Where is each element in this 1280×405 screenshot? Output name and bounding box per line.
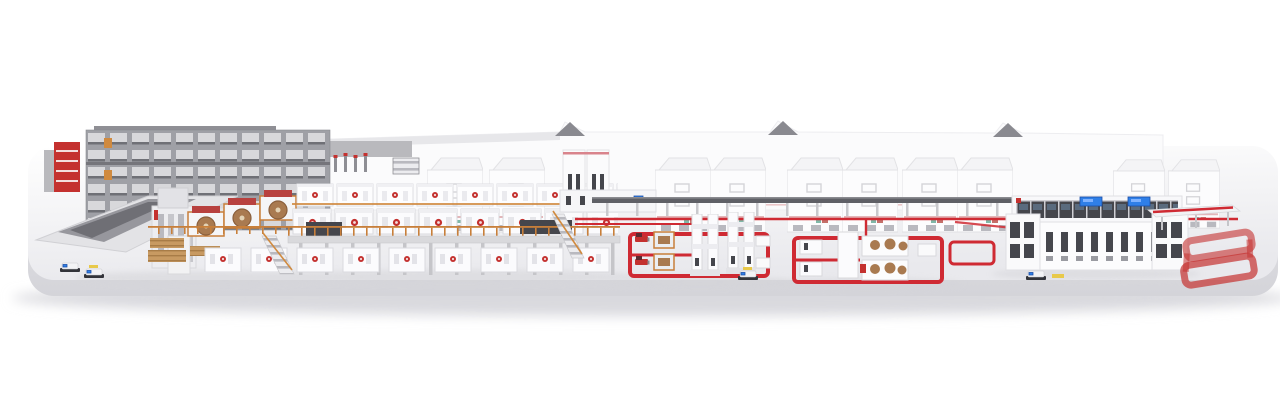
agv — [1026, 271, 1046, 280]
die-cutter-lower — [860, 260, 908, 280]
agv — [60, 263, 80, 272]
sorting-end-tower-right — [1152, 214, 1188, 270]
box-machine — [902, 158, 958, 232]
plant-render-canvas: 3D rendering of a complete corrugated bo… — [0, 0, 1280, 405]
roll-stand — [260, 190, 296, 220]
rack-orange-accent — [104, 170, 112, 180]
box-machine — [787, 158, 843, 232]
roof-steps — [393, 158, 419, 174]
pallet-stack — [148, 250, 186, 262]
corrugator-row-ground — [292, 246, 614, 274]
box-machine — [842, 158, 898, 232]
roll-stand — [224, 198, 260, 228]
red-trim — [563, 152, 609, 155]
box-machine — [957, 158, 1013, 232]
box-machine — [655, 158, 711, 232]
feeder-tower — [838, 232, 858, 278]
pallet-stack — [150, 238, 184, 248]
gable-peak-icon — [555, 122, 585, 136]
sorting-line — [1006, 196, 1188, 278]
sorting-end-tower-left — [1006, 214, 1040, 270]
transfer-conveyor — [592, 197, 1012, 216]
pallet — [1052, 274, 1064, 278]
rack-orange-accent — [104, 138, 112, 148]
die-cutter-upper — [862, 236, 908, 256]
plant-render: 3D rendering of a complete corrugated bo… — [0, 0, 1280, 405]
wet-end-railing — [148, 226, 298, 234]
